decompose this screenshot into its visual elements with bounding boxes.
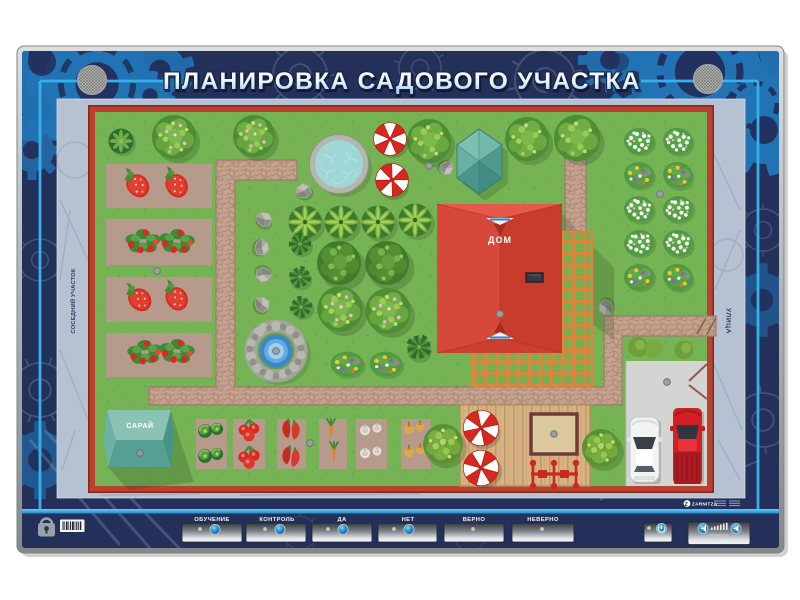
svg-text:СОСЕДНИЙ УЧАСТОК: СОСЕДНИЙ УЧАСТОК	[69, 268, 77, 334]
svg-text:ДА: ДА	[337, 517, 347, 523]
svg-text:ДОМ: ДОМ	[488, 235, 512, 245]
svg-text:КОНТРОЛЬ: КОНТРОЛЬ	[259, 517, 294, 523]
svg-text:ОБУЧЕНИЕ: ОБУЧЕНИЕ	[194, 517, 230, 523]
svg-text:НЕТ: НЕТ	[402, 517, 415, 523]
svg-text:САРАЙ: САРАЙ	[126, 421, 153, 430]
svg-text:ВЕРНО: ВЕРНО	[463, 517, 486, 523]
svg-text:УЛИЦА: УЛИЦА	[725, 308, 732, 334]
svg-text:НЕВЕРНО: НЕВЕРНО	[527, 517, 559, 523]
svg-text:ZARNITZA: ZARNITZA	[692, 502, 718, 507]
svg-text:ГРОМКОСТЬ: ГРОМКОСТЬ	[709, 534, 728, 538]
svg-text:ПЛАНИРОВКА САДОВОГО УЧАСТКА: ПЛАНИРОВКА САДОВОГО УЧАСТКА	[163, 68, 641, 95]
